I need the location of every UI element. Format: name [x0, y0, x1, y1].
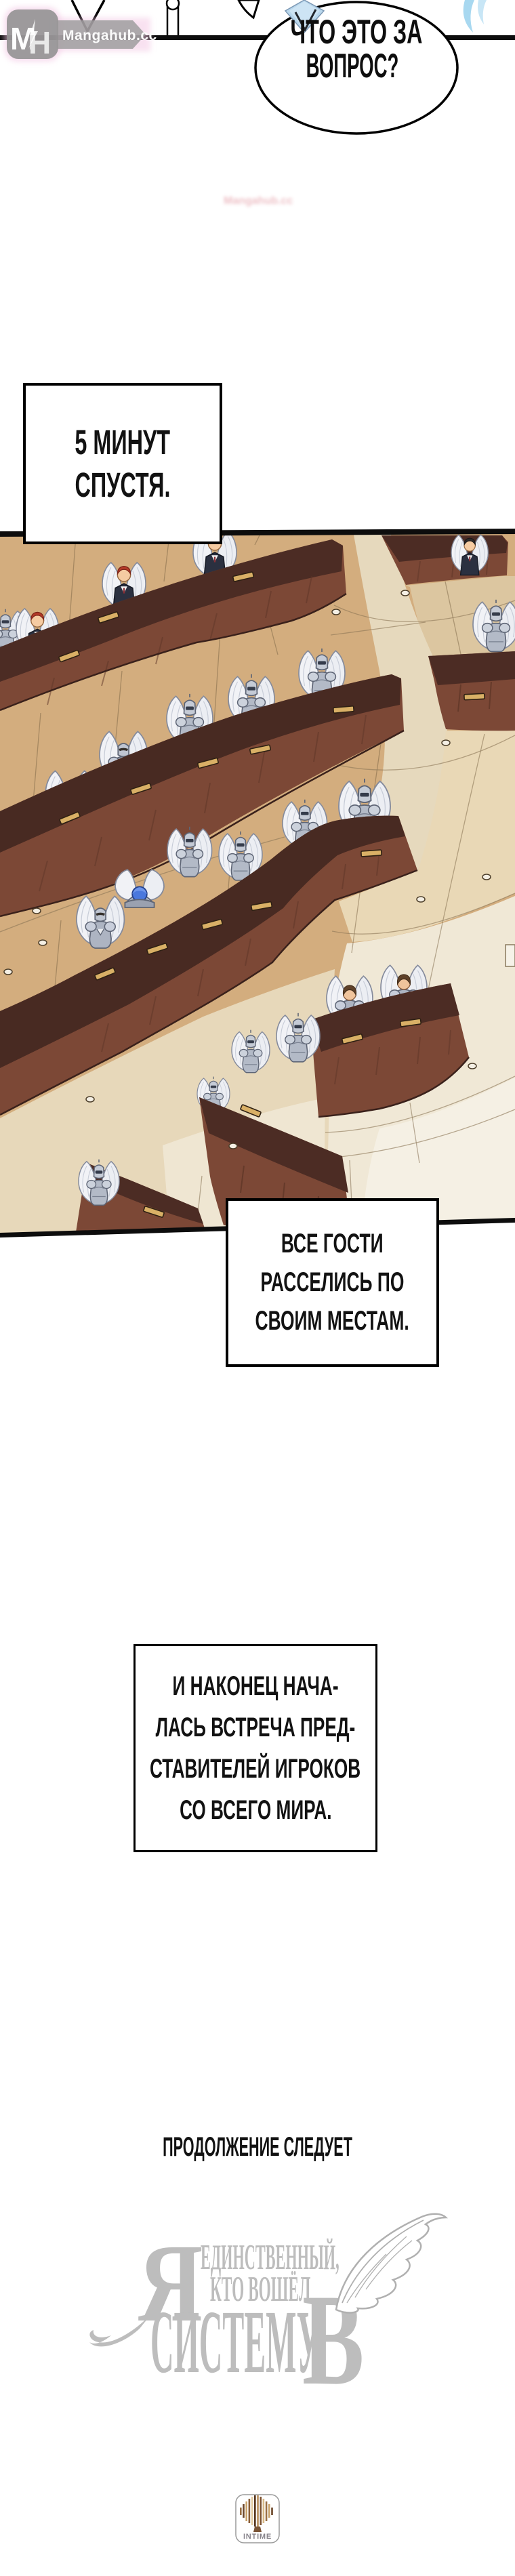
svg-text:ЧТО ЭТО ЗА: ЧТО ЭТО ЗА [291, 13, 423, 51]
svg-text:СИСТЕМУ: СИСТЕМУ [150, 2292, 321, 2392]
svg-text:INTIME: INTIME [243, 2533, 272, 2541]
svg-text:ВОПРОС?: ВОПРОС? [306, 46, 399, 85]
svg-text:Mangahub.cc: Mangahub.cc [62, 28, 157, 43]
